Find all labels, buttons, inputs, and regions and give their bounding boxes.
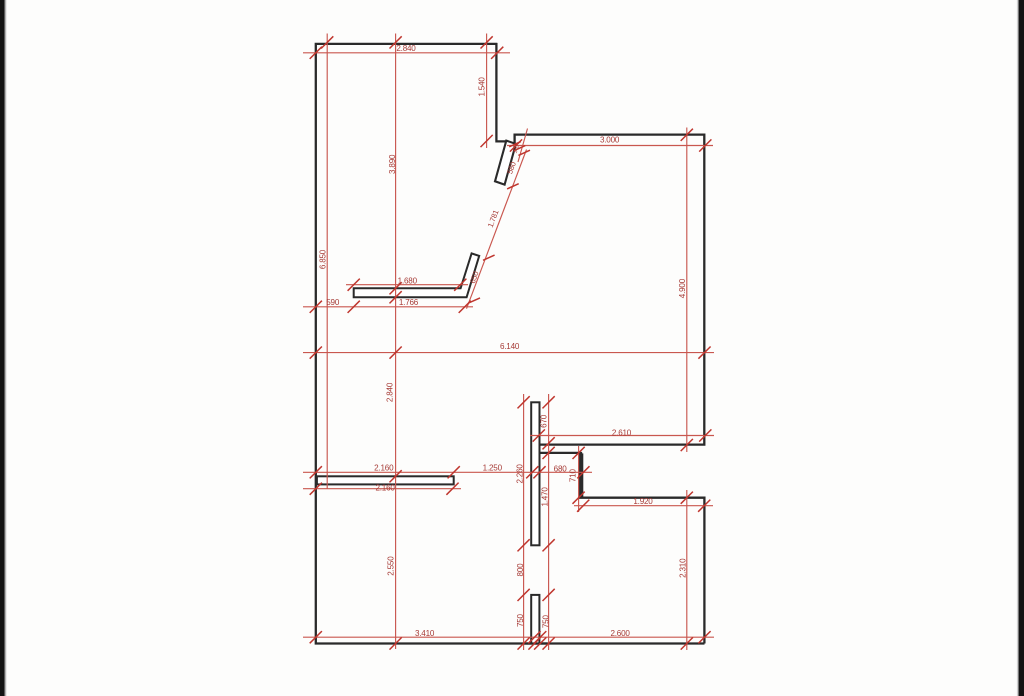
svg-text:2.840: 2.840 <box>396 44 416 53</box>
svg-text:800: 800 <box>516 563 525 577</box>
svg-text:680: 680 <box>554 465 568 474</box>
svg-text:670: 670 <box>539 414 548 428</box>
svg-text:1.920: 1.920 <box>633 497 653 506</box>
svg-text:3.000: 3.000 <box>600 135 620 144</box>
svg-text:1.680: 1.680 <box>398 277 418 286</box>
svg-text:2.840: 2.840 <box>386 382 395 402</box>
svg-text:2.160: 2.160 <box>374 463 394 472</box>
svg-text:2.160: 2.160 <box>375 483 395 492</box>
svg-text:6.850: 6.850 <box>319 249 328 269</box>
svg-text:1.766: 1.766 <box>399 298 419 307</box>
svg-text:6.140: 6.140 <box>500 342 520 351</box>
svg-text:3.890: 3.890 <box>388 154 397 174</box>
svg-text:2.600: 2.600 <box>610 629 630 638</box>
svg-text:710: 710 <box>569 469 578 483</box>
svg-text:1.470: 1.470 <box>540 487 549 507</box>
svg-text:2.260: 2.260 <box>516 464 525 484</box>
svg-text:590: 590 <box>326 298 340 307</box>
svg-text:750: 750 <box>541 615 550 629</box>
svg-text:2.310: 2.310 <box>679 558 688 578</box>
svg-text:4.900: 4.900 <box>678 278 687 298</box>
svg-text:1.250: 1.250 <box>483 463 503 472</box>
svg-text:3.410: 3.410 <box>415 629 435 638</box>
svg-text:750: 750 <box>516 613 525 627</box>
svg-text:1.540: 1.540 <box>477 77 486 97</box>
svg-text:2.610: 2.610 <box>612 428 632 437</box>
svg-text:2.550: 2.550 <box>387 556 396 576</box>
